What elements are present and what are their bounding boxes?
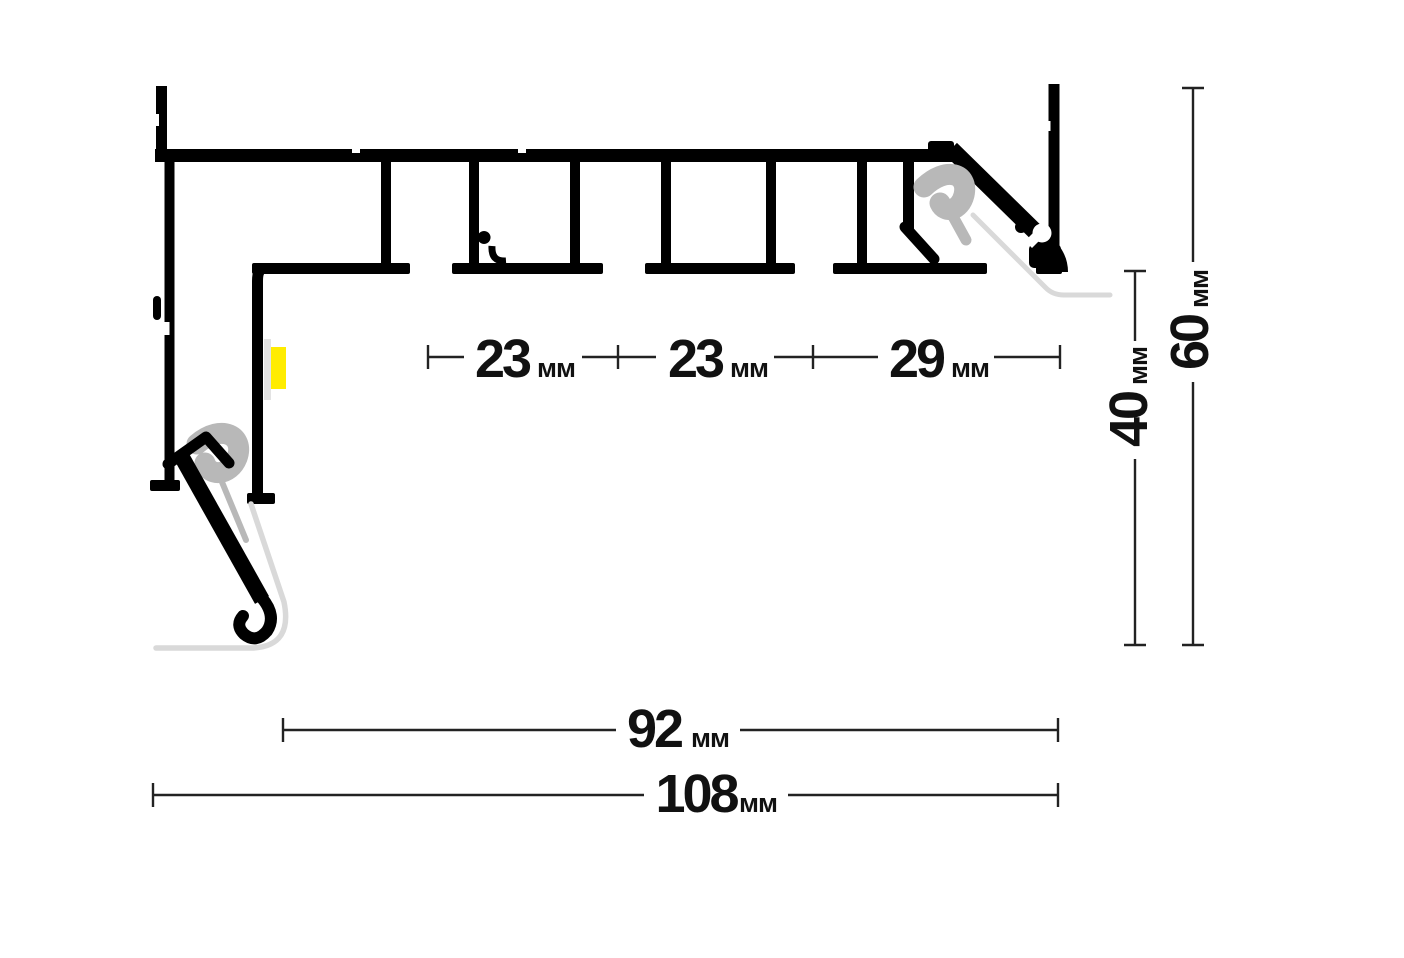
dim-label-40: 40 мм [1099,347,1159,447]
dim-unit-label: мм [537,353,575,383]
led-pocket-wall [258,269,265,497]
dimension-108: 108 мм [153,764,1058,824]
led-strip-base [264,339,271,400]
dimension-row-cells: 23 мм 23 мм 29 мм [428,329,1060,389]
left-outer-foot [150,480,180,491]
dim-value-40: 40 [1099,392,1159,447]
led-strip-assembly [264,339,286,400]
profile-body [150,86,987,504]
plate-break-mark [352,149,360,153]
dim-value-60: 60 [1160,315,1220,370]
left-wall-slot [165,322,170,335]
dimensions: 23 мм 23 мм 29 мм 92 мм 108 мм [153,88,1220,824]
right-spring-clip [924,174,965,209]
dim-unit-label: мм [691,723,729,753]
chamber-slope [905,227,934,259]
left-hook [239,598,271,638]
left-mounting-clip [156,433,286,648]
dim-unit-label: мм [730,353,768,383]
profile-drawing-canvas: 23 мм 23 мм 29 мм 92 мм 108 мм [0,0,1404,958]
bottom-foot [833,263,987,274]
dim-value-23-left: 23 [475,329,531,389]
plate-break-mark [518,149,526,153]
dimension-40: 40 мм [1099,271,1159,645]
flange-break-mark [1047,121,1051,131]
bottom-foot [452,263,603,274]
dim-unit-label: мм [951,353,989,383]
dim-value-92: 92 [627,699,682,759]
hook-lug [1015,221,1027,233]
dim-unit-label: мм [1123,347,1153,385]
bottom-foot [252,263,410,274]
dim-unit-label: мм [1184,270,1214,308]
bottom-foot [645,263,795,274]
dim-value-23-right: 23 [668,329,724,389]
dim-value-29: 29 [889,329,945,389]
screw-boss [478,231,491,244]
right-spring-tail [950,211,966,240]
dim-value-108: 108 [655,764,738,824]
screw-boss-hook [492,246,506,261]
left-wall-rib-nub [153,296,161,320]
profile-cross-section-svg: 23 мм 23 мм 29 мм 92 мм 108 мм [0,0,1404,958]
dimension-60: 60 мм [1160,88,1220,645]
dim-label-60: 60 мм [1160,270,1220,370]
led-strip [271,347,286,389]
left-wall-notch [154,114,159,126]
dim-unit-label: мм [739,788,777,818]
dimension-92: 92 мм [283,699,1058,759]
